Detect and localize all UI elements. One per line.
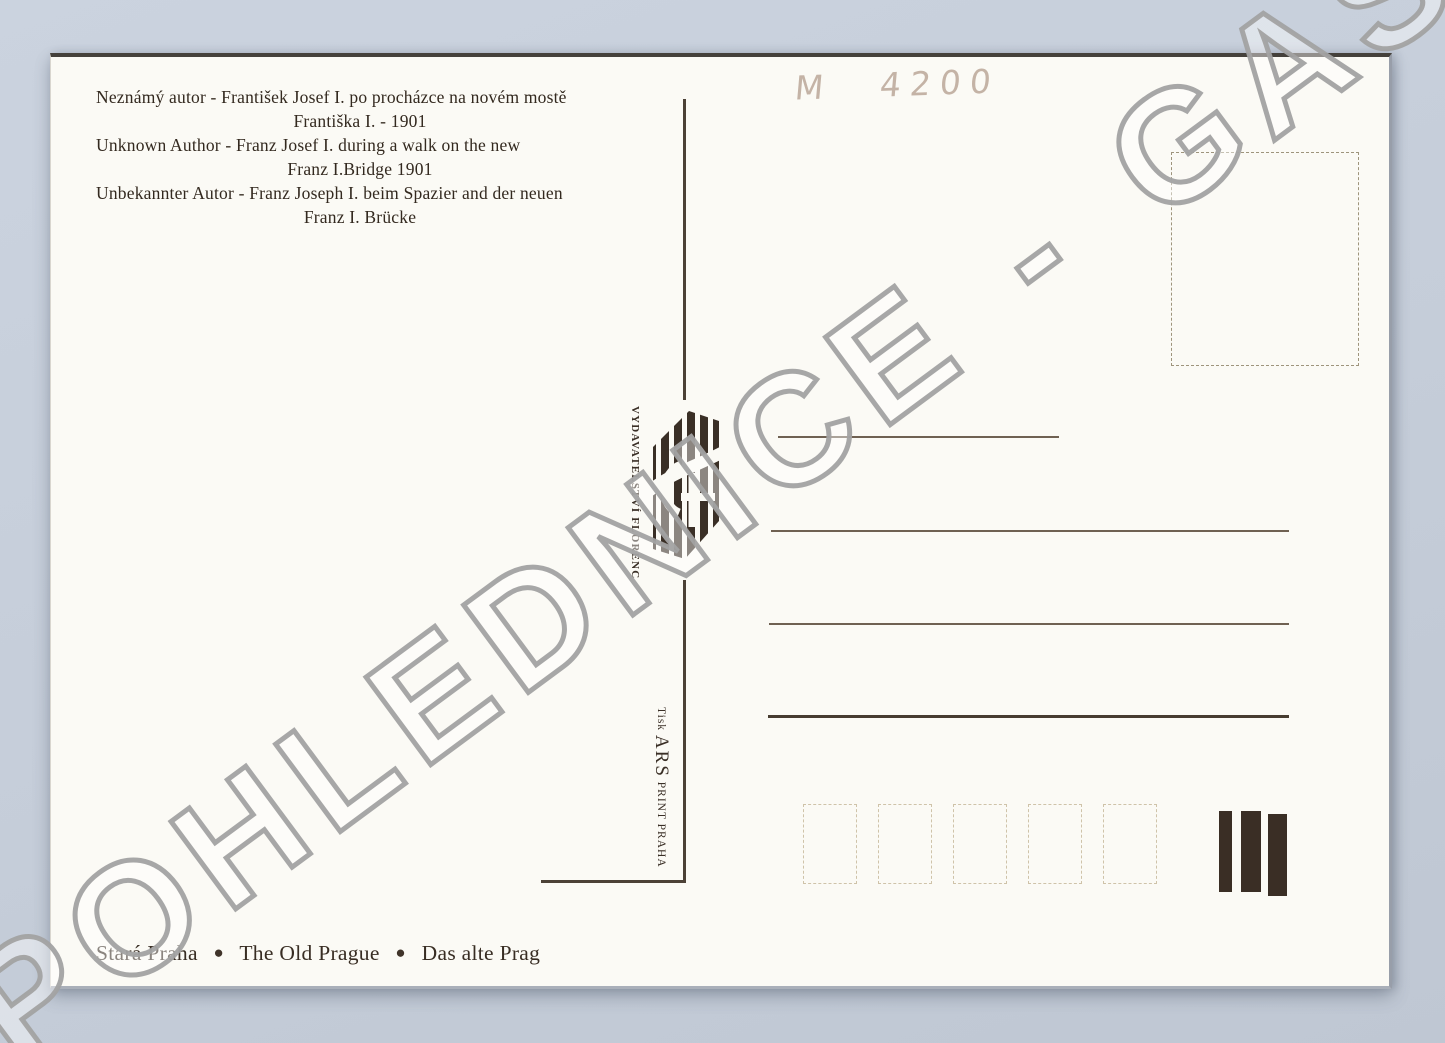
divider-line-bottom <box>683 580 686 883</box>
postal-code-box <box>878 804 932 884</box>
scan-background: Neznámý autor - František Josef I. po pr… <box>0 0 1445 1043</box>
postal-code-box <box>1103 804 1157 884</box>
title-line-english: Unknown Author - Franz Josef I. during a… <box>96 133 624 157</box>
sorting-bar <box>1268 814 1287 896</box>
series-title-german: Das alte Prag <box>422 941 541 965</box>
publisher-logo-icon <box>647 409 725 561</box>
stamp-box <box>1171 152 1359 366</box>
address-line <box>768 715 1289 718</box>
series-title-english: The Old Prague <box>239 941 379 965</box>
sorting-bar <box>1219 811 1232 892</box>
title-line-czech-2: Františka I. - 1901 <box>96 109 624 133</box>
bullet-separator-icon: ● <box>214 943 225 962</box>
bullet-separator-icon: ● <box>395 943 406 962</box>
printer-credit-vertical: Tisk ARS PRINT PRAHA <box>650 707 672 887</box>
address-line <box>771 530 1289 532</box>
series-title: Stará Praha ● The Old Prague ● Das alte … <box>96 941 540 966</box>
postal-code-box <box>1028 804 1082 884</box>
address-line <box>778 436 1059 438</box>
printer-suffix: PRINT PRAHA <box>655 782 667 868</box>
pencil-inventory-number: M 4200 <box>793 61 1001 107</box>
postcard-back: Neznámý autor - František Josef I. po pr… <box>50 53 1392 989</box>
sorting-bar <box>1241 811 1261 892</box>
title-line-german: Unbekannter Autor - Franz Joseph I. beim… <box>96 181 624 205</box>
printer-name: ARS <box>651 735 672 778</box>
title-line-czech: Neznámý autor - František Josef I. po pr… <box>96 85 624 109</box>
title-line-english-2: Franz I.Bridge 1901 <box>96 157 624 181</box>
series-title-czech: Stará Praha <box>96 941 198 965</box>
publisher-name-vertical: VYDAVATELSTVÍ FLORENC <box>629 406 641 584</box>
postal-code-box <box>803 804 857 884</box>
address-line <box>769 623 1289 625</box>
postal-code-box <box>953 804 1007 884</box>
divider-line-top <box>683 99 686 400</box>
title-block: Neznámý autor - František Josef I. po pr… <box>96 85 624 229</box>
printer-prefix: Tisk <box>655 707 667 731</box>
title-line-german-2: Franz I. Brücke <box>96 205 624 229</box>
